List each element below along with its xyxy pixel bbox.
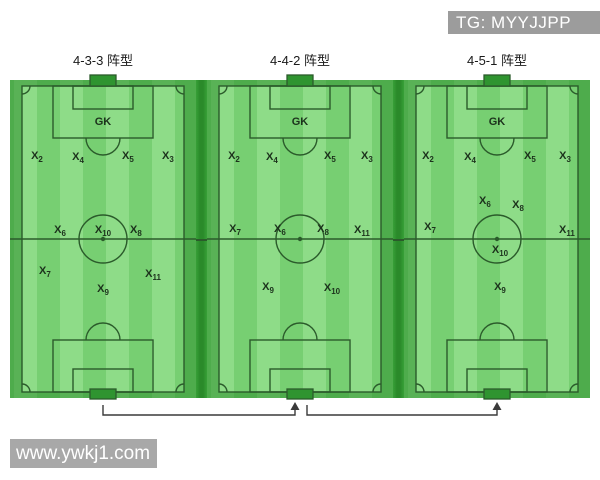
watermark-site: www.ywkj1.com <box>10 439 157 468</box>
players-layer: GKX2X4X5X3X7X6X8X11X9X10 <box>207 74 393 400</box>
player-x2: X2 <box>31 150 43 164</box>
formation-title-433: 4-3-3 阵型 <box>10 50 196 74</box>
player-x7: X7 <box>229 223 241 237</box>
arrow-442-to-451 <box>307 405 497 415</box>
player-x9: X9 <box>494 281 506 295</box>
player-x6: X6 <box>274 223 286 237</box>
player-x10: X10 <box>95 224 111 238</box>
formation-column-442: 4-4-2 阵型 GKX2X4X5X3X7X6X8X11X9X10 <box>207 50 393 400</box>
gk-label: GK <box>292 116 309 128</box>
player-x11: X11 <box>145 268 161 282</box>
player-x9: X9 <box>262 281 274 295</box>
formations-infographic: TG: MYYJJPP 4-3-3 阵型 GKX2X4X5X3X6X10X8X7… <box>0 0 600 480</box>
gk-label: GK <box>95 116 112 128</box>
player-x8: X8 <box>512 199 524 213</box>
pitch-451: GKX2X4X5X3X6X8X7X11X10X9 <box>404 74 590 400</box>
arrow-433-to-442 <box>103 405 295 415</box>
field-divider <box>196 80 207 398</box>
formation-title-451: 4-5-1 阵型 <box>404 50 590 74</box>
player-x4: X4 <box>266 151 278 165</box>
formation-column-451: 4-5-1 阵型 GKX2X4X5X3X6X8X7X11X10X9 <box>404 50 590 400</box>
players-layer: GKX2X4X5X3X6X8X7X11X10X9 <box>404 74 590 400</box>
player-x3: X3 <box>162 150 174 164</box>
transition-arrows <box>90 400 510 426</box>
player-x9: X9 <box>97 283 109 297</box>
player-x8: X8 <box>317 223 329 237</box>
players-layer: GKX2X4X5X3X6X10X8X7X11X9 <box>10 74 196 400</box>
watermark-telegram: TG: MYYJJPP <box>448 11 600 34</box>
player-x8: X8 <box>130 224 142 238</box>
pitch-433: GKX2X4X5X3X6X10X8X7X11X9 <box>10 74 196 400</box>
player-x11: X11 <box>559 224 575 238</box>
formation-column-433: 4-3-3 阵型 GKX2X4X5X3X6X10X8X7X11X9 <box>10 50 196 400</box>
player-x4: X4 <box>72 151 84 165</box>
player-x10: X10 <box>492 244 508 258</box>
gk-label: GK <box>489 116 506 128</box>
player-x3: X3 <box>361 150 373 164</box>
player-x7: X7 <box>39 265 51 279</box>
pitch-442: GKX2X4X5X3X7X6X8X11X9X10 <box>207 74 393 400</box>
player-x2: X2 <box>422 150 434 164</box>
player-x4: X4 <box>464 151 476 165</box>
player-x6: X6 <box>54 224 66 238</box>
player-x11: X11 <box>354 224 370 238</box>
player-x5: X5 <box>122 150 134 164</box>
arrowhead-icon <box>493 402 502 410</box>
player-x10: X10 <box>324 282 340 296</box>
player-x5: X5 <box>524 150 536 164</box>
player-x3: X3 <box>559 150 571 164</box>
halfway-line-segment <box>196 239 207 241</box>
field-divider <box>393 80 404 398</box>
halfway-line-segment <box>393 239 404 241</box>
player-x7: X7 <box>424 221 436 235</box>
arrowhead-icon <box>291 402 300 410</box>
player-x2: X2 <box>228 150 240 164</box>
player-x6: X6 <box>479 195 491 209</box>
formation-title-442: 4-4-2 阵型 <box>207 50 393 74</box>
player-x5: X5 <box>324 150 336 164</box>
